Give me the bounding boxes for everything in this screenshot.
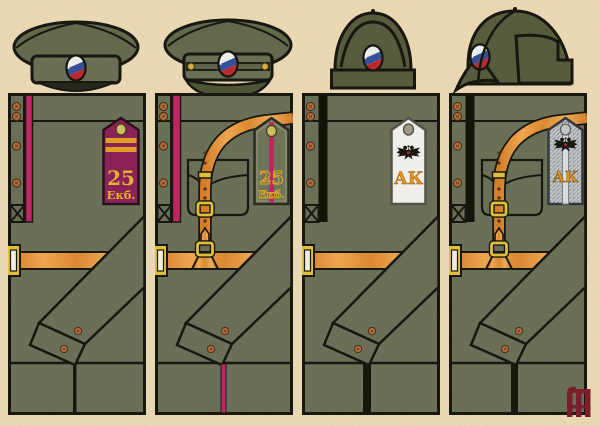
cuff-button <box>368 327 375 334</box>
collar-button <box>159 112 167 120</box>
belt-buckle <box>449 245 461 276</box>
board-button <box>561 124 571 135</box>
shoulder-board-crimson: 25 Екб. <box>104 118 139 204</box>
tunic-panel-1: 25 Екб. <box>8 93 146 415</box>
cuff-button <box>60 345 67 352</box>
cloth-helmet-side <box>448 7 572 90</box>
cuff-button <box>515 327 522 334</box>
board-button <box>404 124 414 135</box>
collar-button <box>306 112 314 120</box>
skirt-vent <box>363 364 371 413</box>
cuff-button <box>221 327 228 334</box>
crimson-piping-stripe <box>26 95 33 222</box>
strap-keeper <box>493 172 506 178</box>
placket-button <box>12 179 20 187</box>
chinstrap-button <box>262 63 269 70</box>
tunic-panel-4: АК <box>449 93 587 415</box>
board-number: 25 <box>259 168 284 189</box>
placket-button <box>159 142 167 150</box>
belt-buckle <box>8 245 20 276</box>
placket-button <box>306 142 314 150</box>
belt-buckle <box>302 245 314 276</box>
placket-button <box>306 179 314 187</box>
board-monogram: АК <box>553 168 579 186</box>
chinstrap-button <box>188 63 195 70</box>
uniform-plate: 25 Екб. <box>0 0 600 426</box>
cuff-button <box>501 345 508 352</box>
black-piping-stripe <box>466 95 475 222</box>
skirt-vent-piping <box>221 364 226 413</box>
collar-button <box>453 112 461 120</box>
tunic-panel-3: АК <box>302 93 440 415</box>
board-abbr: Екб. <box>107 188 136 202</box>
black-piping-stripe <box>319 95 328 222</box>
cuff-button <box>354 345 361 352</box>
belt-buckle <box>155 245 167 276</box>
caps-row <box>0 0 600 100</box>
placket-button <box>159 179 167 187</box>
skirt-vent <box>511 364 518 413</box>
crimson-piping-stripe <box>173 95 181 222</box>
strap-keeper <box>199 172 212 178</box>
cloth-helmet-front <box>332 9 415 91</box>
skirt-vent <box>73 364 77 413</box>
tunic-panel-2: 25 Екб. <box>155 93 293 415</box>
collar-button <box>453 102 461 110</box>
neck-flap <box>516 35 572 83</box>
cuff-button <box>74 327 81 334</box>
placket-button <box>453 142 461 150</box>
board-button <box>267 126 277 137</box>
board-button <box>116 124 126 135</box>
cuff-button <box>207 345 214 352</box>
artist-monogram-logo <box>565 381 593 421</box>
board-abbr: Екб. <box>258 189 284 201</box>
collar-button <box>159 102 167 110</box>
board-number: 25 <box>107 166 135 190</box>
shoulder-board-white: АК <box>392 118 426 204</box>
peaked-field-cap-front <box>14 22 138 100</box>
placket-button <box>12 142 20 150</box>
shoulder-board-silver: АК <box>549 118 583 204</box>
collar-button <box>12 102 20 110</box>
collar-button <box>306 102 314 110</box>
peaked-cap-with-chinstrap-front <box>165 20 291 98</box>
shoulder-board-khaki: 25 Екб. <box>255 118 289 204</box>
placket-button <box>453 179 461 187</box>
board-monogram: АК <box>394 169 424 189</box>
collar-button <box>12 112 20 120</box>
